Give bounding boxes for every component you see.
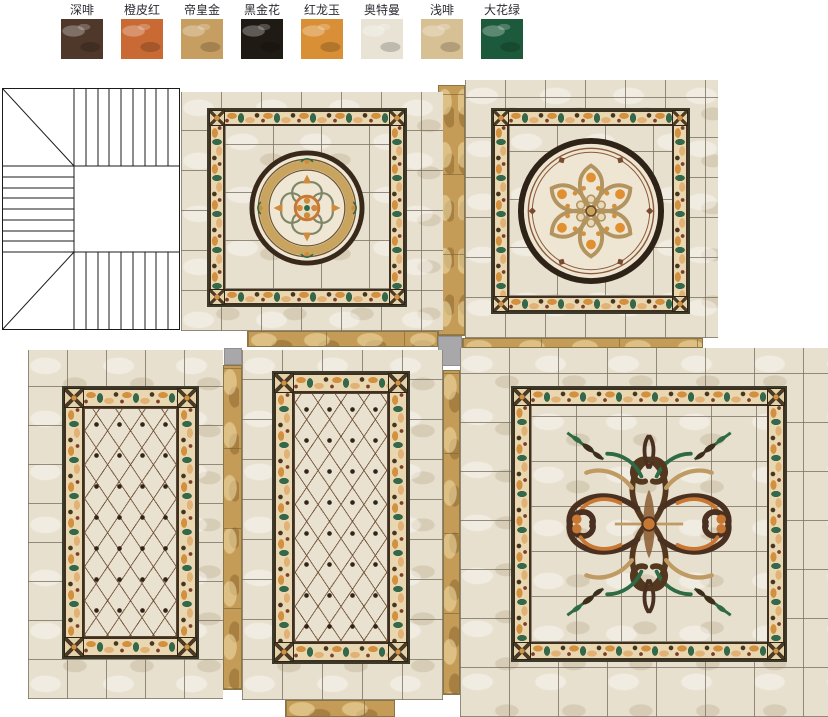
lattice-field xyxy=(294,393,388,642)
frame-corner xyxy=(493,110,509,126)
ornate-frame xyxy=(64,388,197,657)
frame-corner xyxy=(209,289,225,305)
frame-corner xyxy=(672,296,688,312)
material-swatch xyxy=(121,19,163,59)
material-label: 大花绿 xyxy=(480,2,524,18)
frame-band-right xyxy=(388,393,408,642)
frame-corner xyxy=(513,388,531,406)
rug-inner-field xyxy=(225,126,389,289)
legend-item: 红龙玉 xyxy=(300,2,344,59)
material-swatch xyxy=(181,19,223,59)
gold-border-strip-under-panel-2 xyxy=(462,338,703,348)
frame-band-top xyxy=(225,110,389,126)
round-medallion-rug-2 xyxy=(465,80,718,338)
round-medallion-rug-1 xyxy=(181,92,443,331)
rug-inner-field xyxy=(509,126,672,296)
damask-rug-right xyxy=(460,348,828,717)
material-legend: 深啡 橙皮红 帝皇金 黑金花 红龙玉 奥特曼 浅啡 大花绿 xyxy=(60,2,524,59)
frame-corner xyxy=(767,642,785,660)
frame-corner xyxy=(177,637,197,657)
frame-corner xyxy=(388,373,408,393)
material-swatch xyxy=(61,19,103,59)
gold-border-strip-right-of-center xyxy=(443,370,460,695)
frame-band-bottom xyxy=(84,637,177,657)
pillar-block-left xyxy=(224,348,242,365)
material-swatch xyxy=(481,19,523,59)
frame-band-right xyxy=(672,126,688,296)
frame-band-right xyxy=(389,126,405,289)
damask-medallion-artwork xyxy=(535,410,763,638)
frame-band-top xyxy=(84,388,177,408)
frame-band-top xyxy=(294,373,388,393)
frame-band-bottom xyxy=(509,296,672,312)
material-label: 帝皇金 xyxy=(180,2,224,18)
frame-band-right xyxy=(177,408,197,637)
material-label: 红龙玉 xyxy=(300,2,344,18)
ornate-frame xyxy=(209,110,405,305)
frame-corner xyxy=(274,373,294,393)
frame-band-bottom xyxy=(225,289,389,305)
ornate-frame xyxy=(513,388,785,660)
rug-inner-field xyxy=(531,406,767,642)
legend-item: 黑金花 xyxy=(240,2,284,59)
frame-corner xyxy=(767,388,785,406)
material-label: 奥特曼 xyxy=(360,2,404,18)
material-swatch xyxy=(421,19,463,59)
frame-corner xyxy=(177,388,197,408)
legend-item: 奥特曼 xyxy=(360,2,404,59)
gold-border-strip-left-of-center xyxy=(223,365,242,690)
material-label: 浅啡 xyxy=(420,2,464,18)
frame-corner xyxy=(513,642,531,660)
frame-band-left xyxy=(513,406,531,642)
frame-corner xyxy=(672,110,688,126)
frame-band-left xyxy=(64,408,84,637)
material-swatch xyxy=(361,19,403,59)
gold-border-strip-bottom-center xyxy=(285,700,395,717)
frame-corner xyxy=(274,642,294,662)
lattice-rug-center xyxy=(242,350,443,700)
frame-band-bottom xyxy=(531,642,767,660)
frame-corner xyxy=(209,110,225,126)
material-label: 橙皮红 xyxy=(120,2,164,18)
frame-corner xyxy=(389,289,405,305)
material-swatch xyxy=(241,19,283,59)
staircase-plan xyxy=(2,88,180,330)
frame-band-top xyxy=(509,110,672,126)
frame-band-top xyxy=(531,388,767,406)
frame-band-left xyxy=(274,393,294,642)
floor-paving-plan: 深啡 橙皮红 帝皇金 黑金花 红龙玉 奥特曼 浅啡 大花绿 xyxy=(0,0,828,717)
frame-band-bottom xyxy=(294,642,388,662)
legend-item: 大花绿 xyxy=(480,2,524,59)
legend-item: 帝皇金 xyxy=(180,2,224,59)
gold-border-strip-under-panel-1 xyxy=(247,331,438,347)
frame-corner xyxy=(64,637,84,657)
lattice-field xyxy=(84,408,177,637)
round-medallion-1-artwork xyxy=(248,149,366,267)
material-label: 黑金花 xyxy=(240,2,284,18)
frame-corner xyxy=(389,110,405,126)
frame-band-left xyxy=(493,126,509,296)
frame-band-left xyxy=(209,126,225,289)
legend-item: 橙皮红 xyxy=(120,2,164,59)
frame-corner xyxy=(64,388,84,408)
legend-item: 浅啡 xyxy=(420,2,464,59)
frame-corner xyxy=(388,642,408,662)
frame-corner xyxy=(493,296,509,312)
ornate-frame xyxy=(274,373,408,662)
legend-item: 深啡 xyxy=(60,2,104,59)
material-label: 深啡 xyxy=(60,2,104,18)
frame-band-right xyxy=(767,406,785,642)
lattice-rug-left xyxy=(28,350,223,699)
material-swatch xyxy=(301,19,343,59)
ornate-frame xyxy=(493,110,688,312)
staircase-drawing xyxy=(2,88,180,330)
round-medallion-2-artwork xyxy=(517,137,665,285)
